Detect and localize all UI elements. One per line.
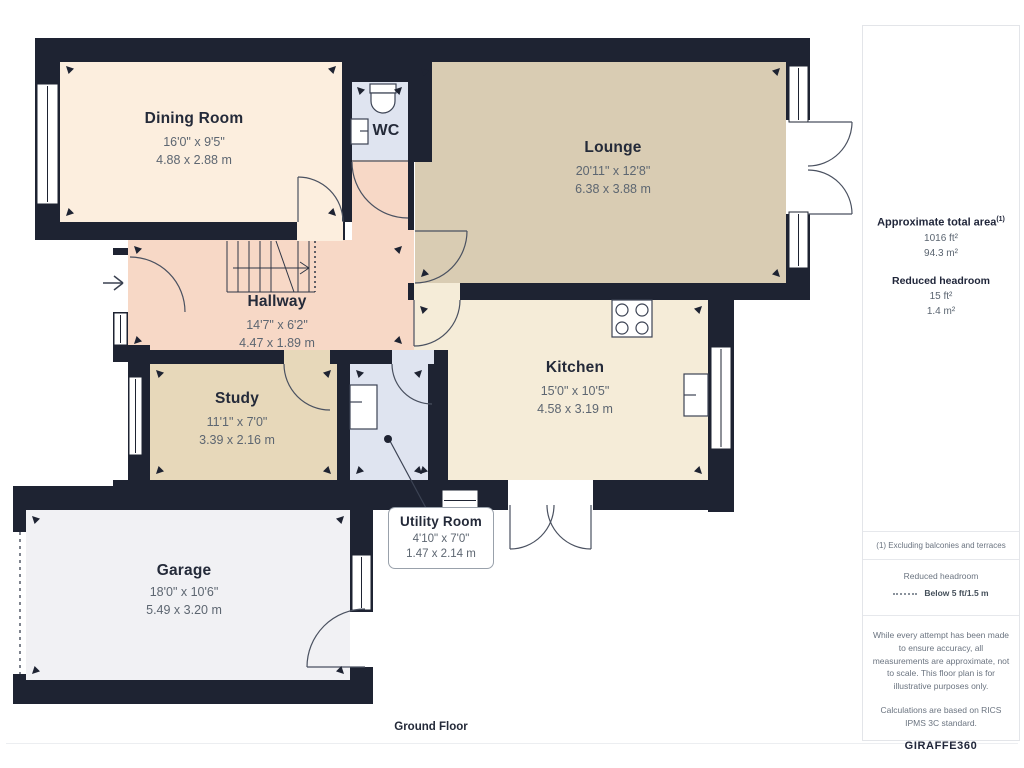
total-area-m: 94.3 m² — [863, 248, 1019, 259]
legend-entry: Below 5 ft/1.5 m — [863, 588, 1019, 598]
dotted-line-symbol — [893, 593, 917, 595]
toilet-icon — [370, 84, 396, 113]
floor-plan-page: Dining Room 16'0" x 9'5" 4.88 x 2.88 m W… — [0, 0, 1024, 768]
disclaimer-text: While every attempt has been made to ens… — [872, 629, 1010, 693]
reduced-headroom-title: Reduced headroom — [863, 275, 1019, 287]
reduced-headroom-m: 1.4 m² — [863, 306, 1019, 317]
reduced-headroom-ft: 15 ft² — [863, 291, 1019, 302]
total-area-ft: 1016 ft² — [863, 233, 1019, 244]
sink-icon — [351, 119, 368, 144]
hob-icon — [612, 300, 652, 337]
room-label-utility-callout: Utility Room 4'10" x 7'0" 1.47 x 2.14 m — [388, 507, 494, 569]
floor-title: Ground Floor — [0, 721, 862, 733]
hallway-ext-floor — [352, 160, 414, 250]
standard-text: Calculations are based on RICS IPMS 3C s… — [872, 704, 1010, 730]
reduced-headroom-section: Reduced headroom 15 ft² 1.4 m² — [863, 275, 1019, 317]
kitchen-floor — [414, 300, 708, 480]
lounge-floor — [415, 62, 786, 283]
total-area-title: Approximate total area(1) — [863, 216, 1019, 229]
dining-floor — [60, 62, 342, 222]
study-floor — [150, 364, 337, 480]
info-sidebar: Approximate total area(1) 1016 ft² 94.3 … — [862, 25, 1020, 741]
legend-section: Reduced headroom Below 5 ft/1.5 m — [863, 559, 1019, 598]
disclaimer-section: While every attempt has been made to ens… — [863, 615, 1019, 752]
garage-floor — [26, 510, 350, 680]
legend-title: Reduced headroom — [863, 571, 1019, 581]
footnote-section: (1) Excluding balconies and terraces — [863, 531, 1019, 550]
washer-icon — [350, 385, 377, 429]
footnote-marker: (1) — [996, 216, 1005, 223]
total-area-section: Approximate total area(1) 1016 ft² 94.3 … — [863, 216, 1019, 259]
giraffe360-logo: GIRAFFE360 — [872, 740, 1010, 752]
kitchen-sink-icon — [684, 374, 708, 416]
